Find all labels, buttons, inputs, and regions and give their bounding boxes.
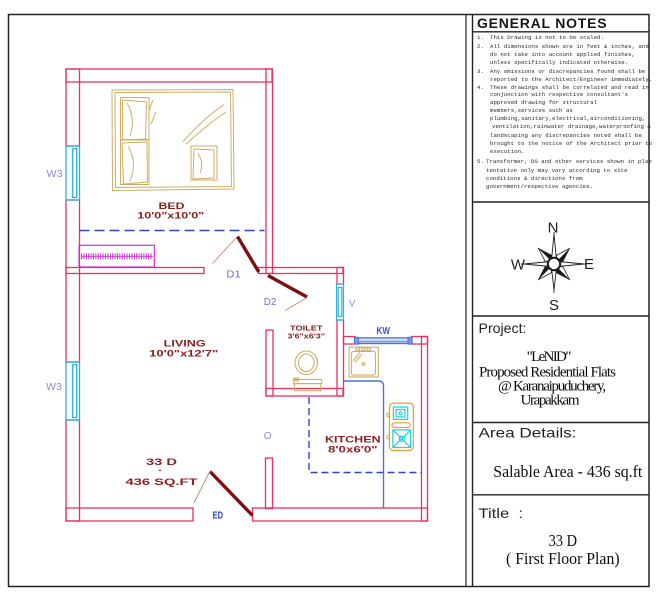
svg-text:( First Floor Plan): ( First Floor Plan): [506, 549, 620, 568]
svg-text:GENERAL NOTES: GENERAL NOTES: [477, 15, 607, 31]
svg-text:Salable Area - 436 sq.ft: Salable Area - 436 sq.ft: [493, 462, 642, 481]
svg-text:Project:: Project:: [479, 320, 527, 336]
svg-text:Urapakkam: Urapakkam: [521, 392, 580, 408]
svg-text:Title :: Title :: [479, 505, 524, 521]
svg-text:Area Details:: Area Details:: [479, 425, 577, 441]
svg-text:"LeNID": "LeNID": [527, 349, 572, 365]
svg-text:33 D: 33 D: [549, 531, 577, 550]
